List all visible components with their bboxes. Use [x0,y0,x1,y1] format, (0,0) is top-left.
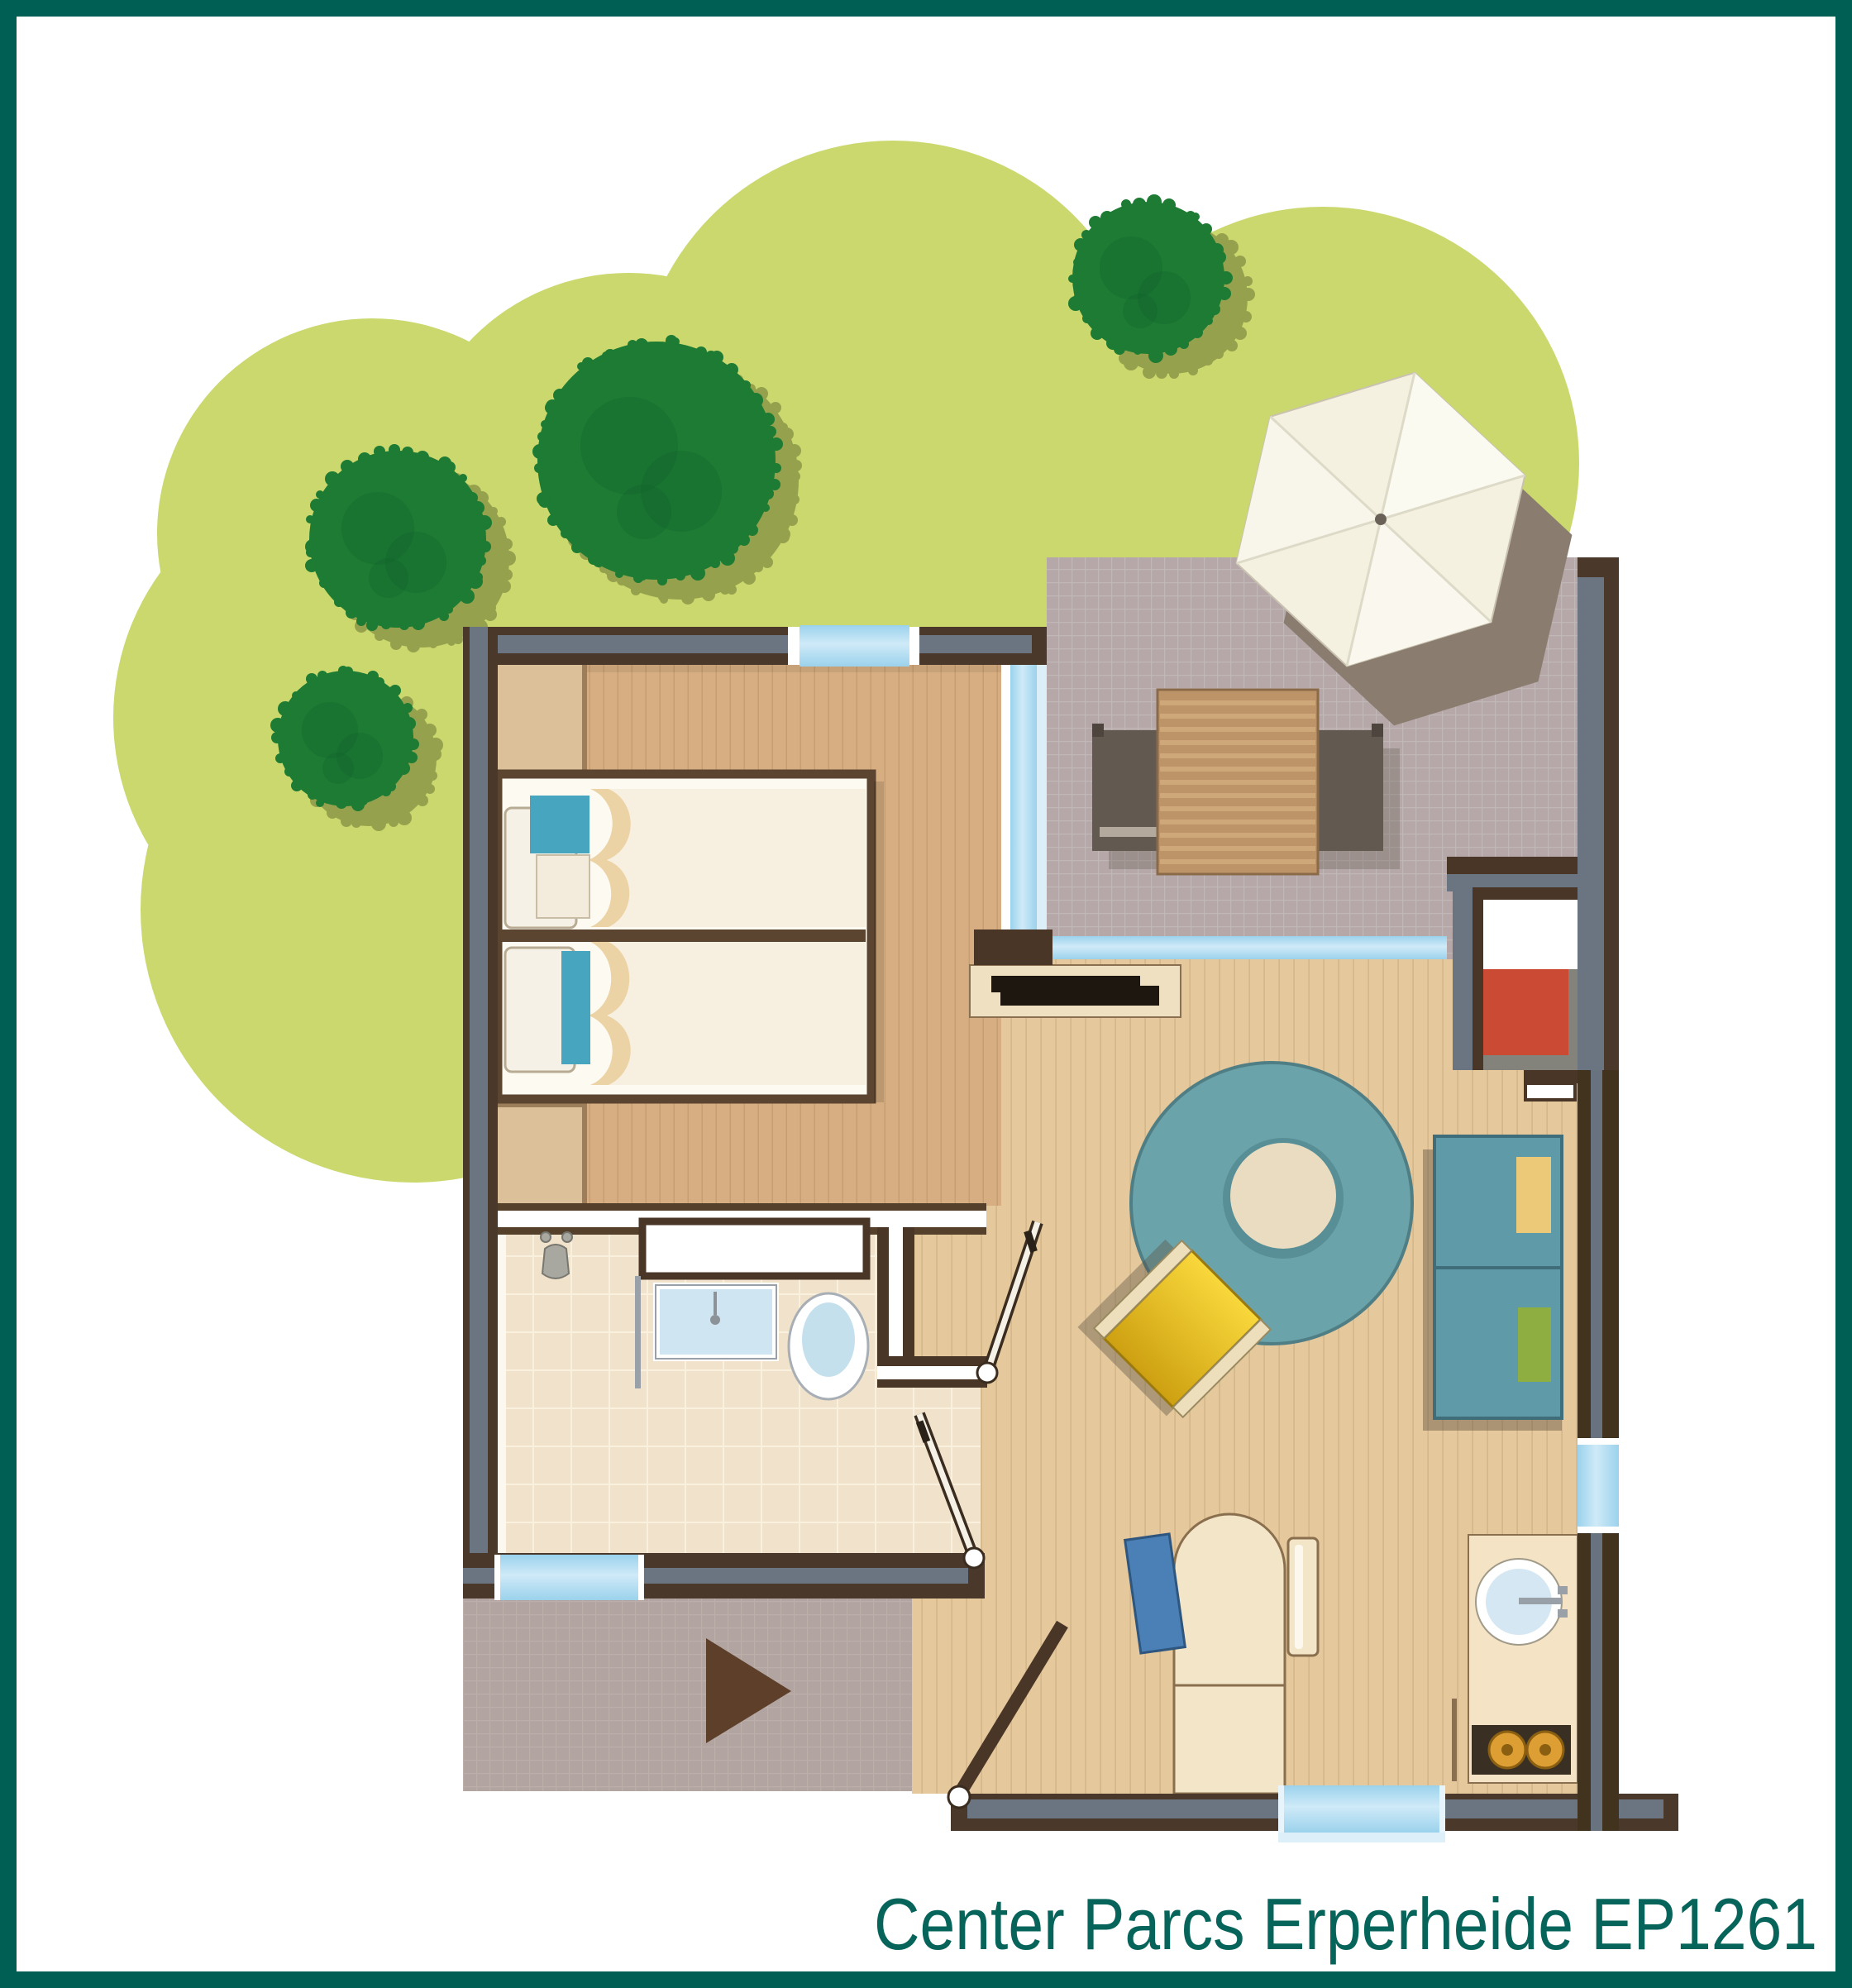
svg-text:Center Parcs Erperheide EP1261: Center Parcs Erperheide EP1261 [874,1883,1817,1965]
